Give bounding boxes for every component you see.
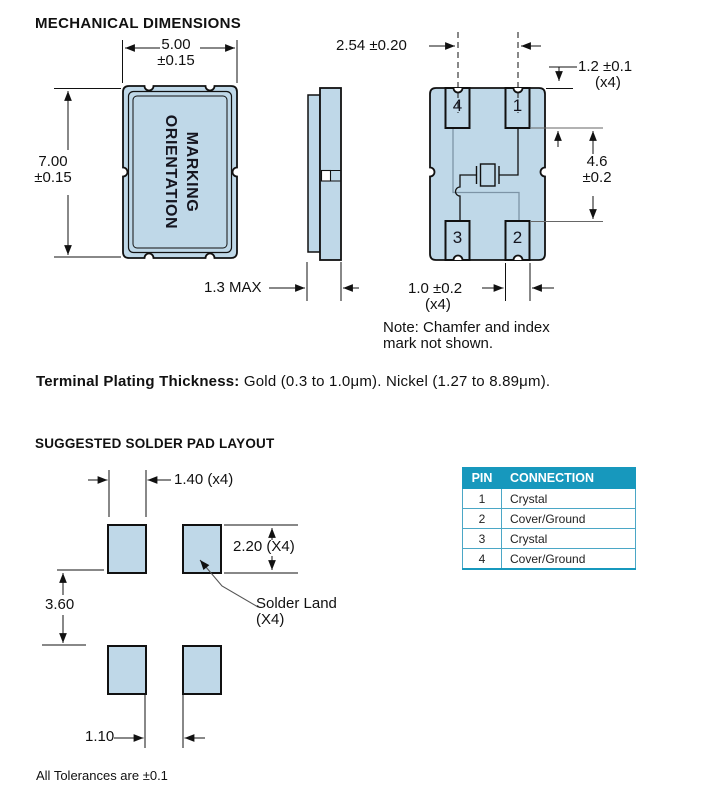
pin-connection-table: PIN CONNECTION 1 Crystal 2 Cover/Ground …	[462, 467, 636, 570]
pad-number-4: 4	[445, 96, 470, 116]
dim-1_2-lines	[546, 67, 577, 147]
solder-land-qty: (X4)	[256, 612, 284, 628]
dim-1_2-label: 1.2 ±0.1	[578, 59, 632, 75]
tolerance-footnote: All Tolerances are ±0.1	[36, 768, 168, 784]
pin-table-header-row: PIN CONNECTION	[463, 468, 636, 489]
side-view-package	[308, 88, 341, 260]
dim-5mm-label: 5.00 ±0.15	[132, 37, 220, 69]
connection-header: CONNECTION	[502, 468, 636, 489]
dim-1_40-label: 1.40 (x4)	[174, 472, 233, 488]
dim-7mm-label: 7.00 ±0.15	[19, 154, 87, 186]
mechanical-drawing-page: { "title": "MECHANICAL DIMENSIONS", "top…	[0, 0, 709, 796]
pad-number-1: 1	[505, 96, 530, 116]
solder-layout-heading: SUGGESTED SOLDER PAD LAYOUT	[35, 436, 274, 451]
table-row: 1 Crystal	[463, 489, 636, 509]
dim-1_0-qty: (x4)	[425, 297, 451, 313]
note-line2: mark not shown.	[383, 336, 493, 352]
marking-orientation-text: MARKING ORIENTATION	[158, 97, 202, 247]
dim-1_2-qty: (x4)	[595, 75, 621, 91]
pin-header: PIN	[463, 468, 502, 489]
pad-number-3: 3	[445, 228, 470, 248]
solder-lands	[108, 525, 221, 694]
dim-1_3max-lines	[269, 262, 359, 301]
page-title: MECHANICAL DIMENSIONS	[35, 15, 241, 32]
table-row: 4 Cover/Ground	[463, 549, 636, 570]
dim-1_10-label: 1.10	[85, 729, 114, 745]
dim-3_60-label: 3.60	[45, 597, 74, 613]
dim-1_0-lines	[482, 263, 554, 301]
pad-number-2: 2	[505, 228, 530, 248]
dim-2_54-label: 2.54 ±0.20	[336, 38, 407, 54]
terminal-plating-label: Terminal Plating Thickness:	[36, 373, 240, 390]
terminal-plating-note: Terminal Plating Thickness: Gold (0.3 to…	[36, 373, 550, 390]
table-row: 2 Cover/Ground	[463, 509, 636, 529]
dim-1_10-lines	[114, 695, 205, 748]
note-line1: Note: Chamfer and index	[383, 320, 550, 336]
table-row: 3 Crystal	[463, 529, 636, 549]
dim-1_0-label: 1.0 ±0.2	[408, 281, 462, 297]
dim-2_20-label: 2.20 (X4)	[233, 539, 295, 555]
solder-land-label: Solder Land	[256, 596, 337, 612]
crystal-symbol	[477, 164, 500, 186]
terminal-plating-text: Gold (0.3 to 1.0μm). Nickel (1.27 to 8.8…	[240, 373, 551, 390]
bottom-view-package	[430, 32, 545, 260]
dim-1_40-lines	[88, 470, 171, 517]
dim-4_6-label: 4.6 ±0.2	[575, 154, 619, 186]
dim-1_3max-label: 1.3 MAX	[204, 280, 262, 296]
